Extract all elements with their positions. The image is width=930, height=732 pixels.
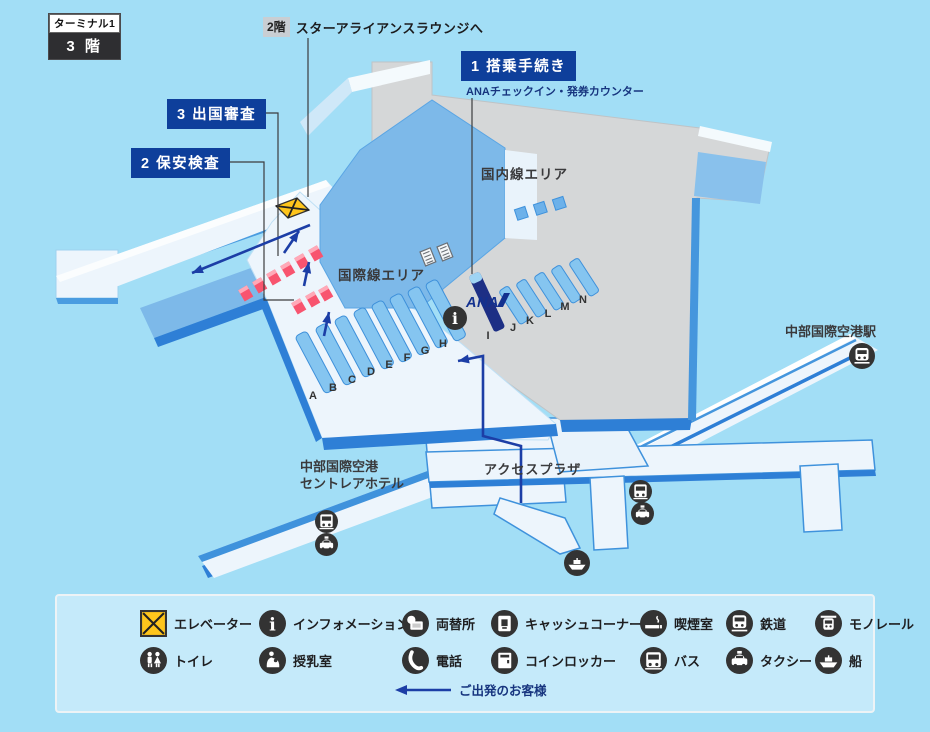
counter-letter: L [545,308,552,320]
floor-badge: ターミナル1 3 階 [48,13,121,60]
plaza-arm-east [800,464,842,532]
ship-icon [815,647,842,674]
taxi-icon [726,647,753,674]
callout-checkin: 1 搭乗手続き [461,51,576,81]
legend-item: iインフォメーション [259,610,409,637]
label-international-area: 国際線エリア [338,264,425,284]
legend-item: バス [640,647,700,674]
legend-label: 鉄道 [760,614,786,633]
info-icon: i [259,610,286,637]
legend-label: タクシー [760,651,812,670]
floor-2f-badge: 2階 [263,17,290,37]
train-icon [726,610,753,637]
legend-label: バス [674,651,700,670]
svg-text:i: i [269,614,276,635]
departure-note-text: ご出発のお客様 [459,680,547,699]
counter-letter: C [348,374,356,386]
legend-label: インフォメーション [293,614,409,633]
legend-label: 授乳室 [293,651,332,670]
counter-letter: E [385,359,392,371]
counter-letter: M [560,301,569,313]
smoking-icon [640,610,667,637]
legend-item: タクシー [726,647,812,674]
legend-label: コインロッカー [525,651,616,670]
counter-letter: J [510,322,516,334]
plaza-arm-south [590,476,628,550]
taxi-icon [631,502,654,525]
departure-arrow-icon [395,684,451,696]
legend-label: トイレ [174,651,213,670]
locker-icon [491,647,518,674]
legend-label: 船 [849,651,862,670]
label-station: 中部国際空港駅 [785,321,876,340]
counter-letter: K [526,315,534,327]
counter-letter: G [421,345,430,357]
bus-icon [640,647,667,674]
legend-item: 鉄道 [726,610,786,637]
legend-label: 喫煙室 [674,614,713,633]
nursing-icon [259,647,286,674]
svg-text:i: i [452,309,458,328]
label-hotel: 中部国際空港 セントレアホテル [300,458,404,492]
legend-item: 喫煙室 [640,610,713,637]
legend-label: 電話 [436,651,462,670]
counter-letter: B [329,382,337,394]
lounge-note: 2階 スターアライアンスラウンジへ [263,17,483,37]
terminal-name: ターミナル1 [49,14,120,33]
legend-item: トイレ [140,647,213,674]
legend-item: 授乳室 [259,647,332,674]
counter-letter: N [579,294,587,306]
legend-label: 両替所 [436,614,475,633]
counter-letter: A [309,390,317,402]
label-access-plaza: アクセスプラザ [484,459,581,478]
elevator-icon [140,610,167,637]
airport-floor-map: ABCDEFGHIJKLMN ANA ターミナル1 3 階 2階 スターアライア… [0,0,930,732]
lounge-note-text: スターアライアンスラウンジへ [296,18,484,37]
departure-note: ご出発のお客様 [395,680,547,699]
floor-number: 3 階 [49,33,120,57]
ana-logo-text: ANA [465,295,499,311]
taxi-icon [315,533,338,556]
exchange-icon [402,610,429,637]
legend-item: 電話 [402,647,462,674]
callout-checkin-sub: ANAチェックイン・発券カウンター [466,83,644,99]
legend-label: モノレール [849,614,914,633]
legend-label: エレベーター [174,614,252,633]
ship-icon [564,550,590,576]
bus-icon [629,480,652,503]
info-icon: i [443,306,467,330]
legend-label: キャッシュコーナー [525,614,642,633]
legend-item: コインロッカー [491,647,616,674]
legend-box: エレベーターiインフォメーション両替所キャッシュコーナー喫煙室鉄道モノレールトイ… [55,594,875,713]
counter-letter: H [439,338,447,350]
bus-icon [315,510,338,533]
label-domestic-area: 国内線エリア [481,163,568,183]
monorail-icon [815,610,842,637]
phone-icon [402,647,429,674]
callout-immigration: 3 出国審査 [167,99,266,129]
legend-item: モノレール [815,610,914,637]
legend-item: 船 [815,647,862,674]
counter-letter: F [404,352,411,364]
plaza-ship-arm [494,498,580,554]
legend-item: キャッシュコーナー [491,610,642,637]
legend-item: 両替所 [402,610,475,637]
train-icon [849,343,875,369]
toilet-icon [140,647,167,674]
callout-security: 2 保安検査 [131,148,230,178]
atm-icon [491,610,518,637]
counter-letter: I [486,330,489,342]
counter-letter: D [367,366,375,378]
legend-item: エレベーター [140,610,252,637]
